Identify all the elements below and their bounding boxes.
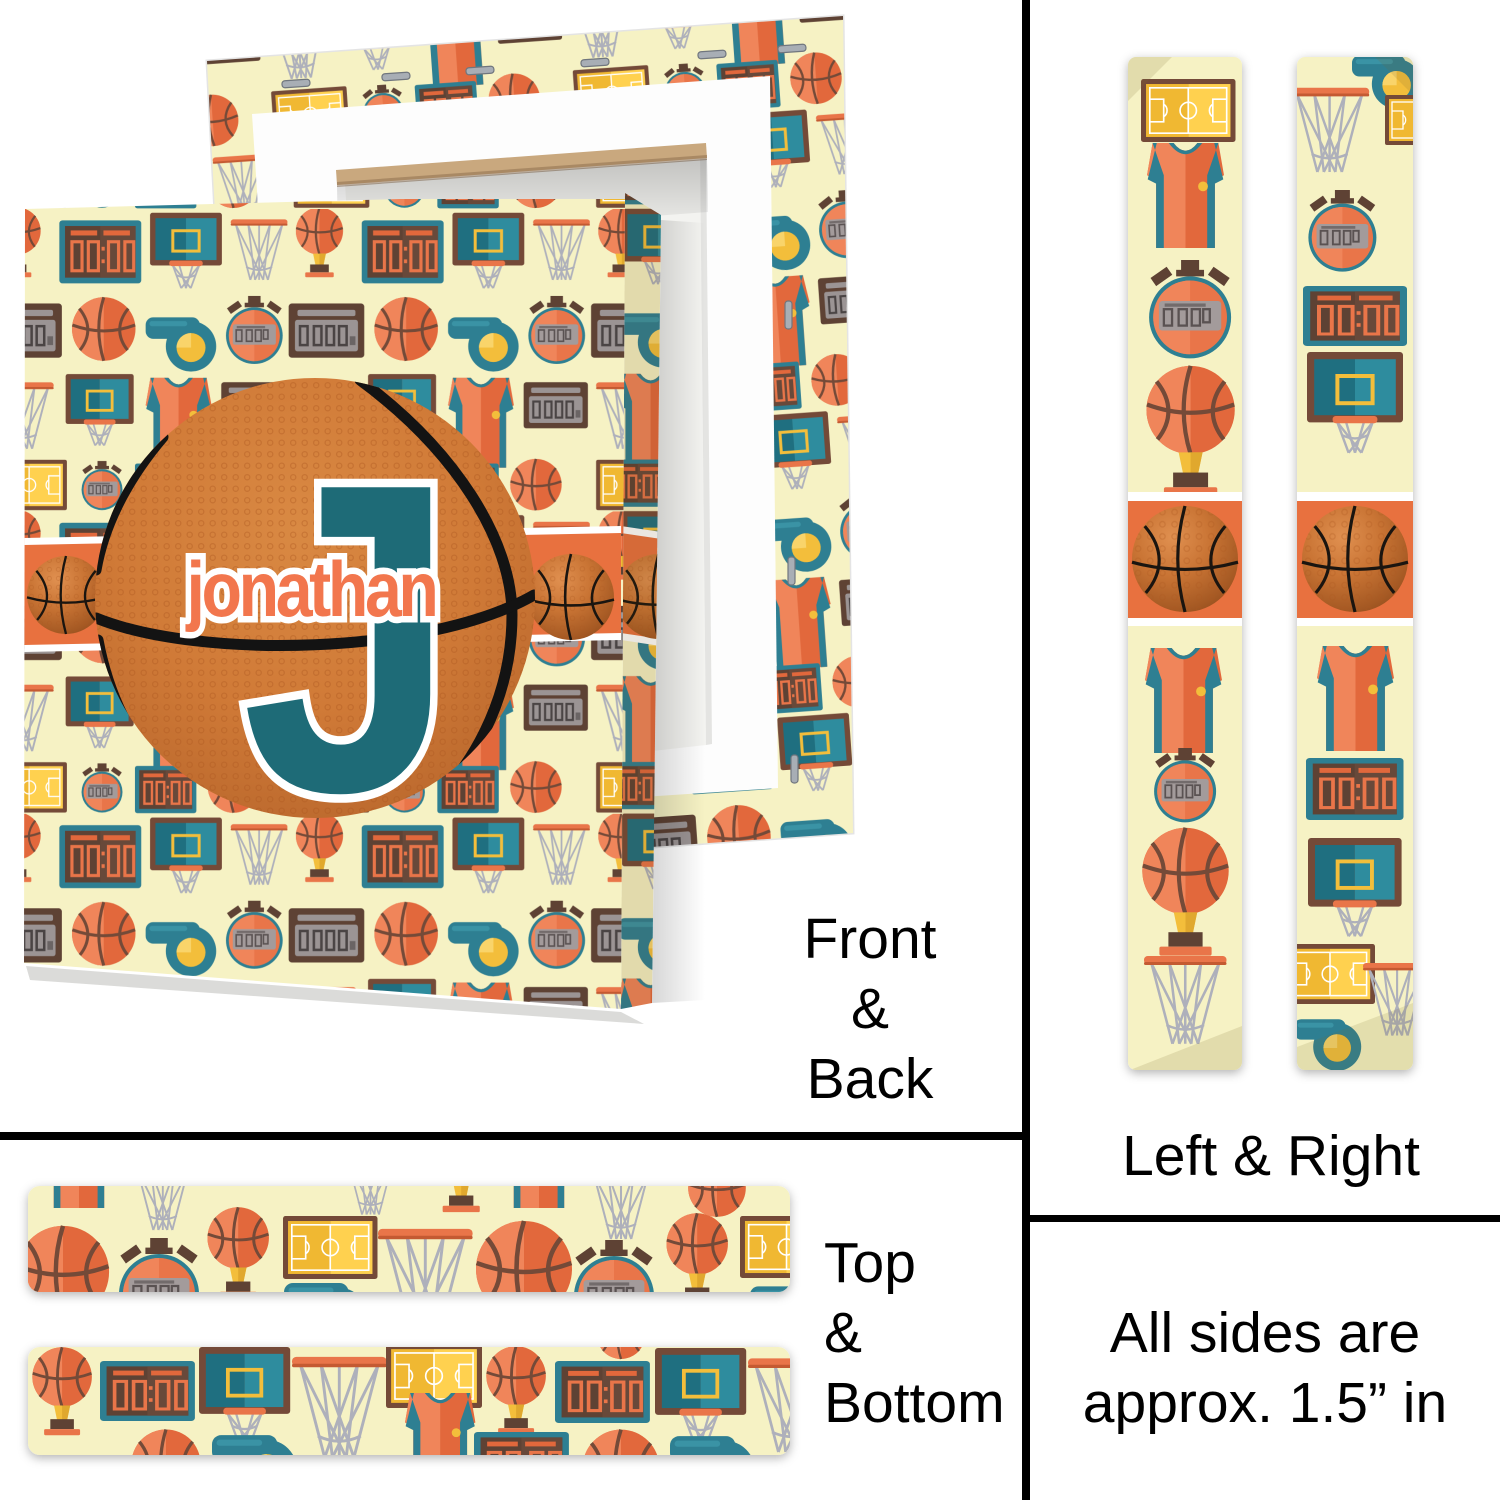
- svg-text:Back: Back: [807, 1047, 934, 1111]
- svg-text:Front: Front: [803, 907, 936, 971]
- svg-text:&: &: [824, 1301, 862, 1365]
- svg-text:&: &: [851, 977, 889, 1041]
- svg-text:Top: Top: [824, 1231, 916, 1295]
- svg-text:All sides are: All sides are: [1110, 1301, 1420, 1365]
- svg-text:Left & Right: Left & Right: [1122, 1124, 1420, 1188]
- svg-text:approx. 1.5” in: approx. 1.5” in: [1083, 1371, 1447, 1435]
- svg-text:Bottom: Bottom: [824, 1371, 1005, 1435]
- svg-text:J: J: [241, 392, 456, 884]
- svg-text:jonathan: jonathan: [185, 546, 436, 633]
